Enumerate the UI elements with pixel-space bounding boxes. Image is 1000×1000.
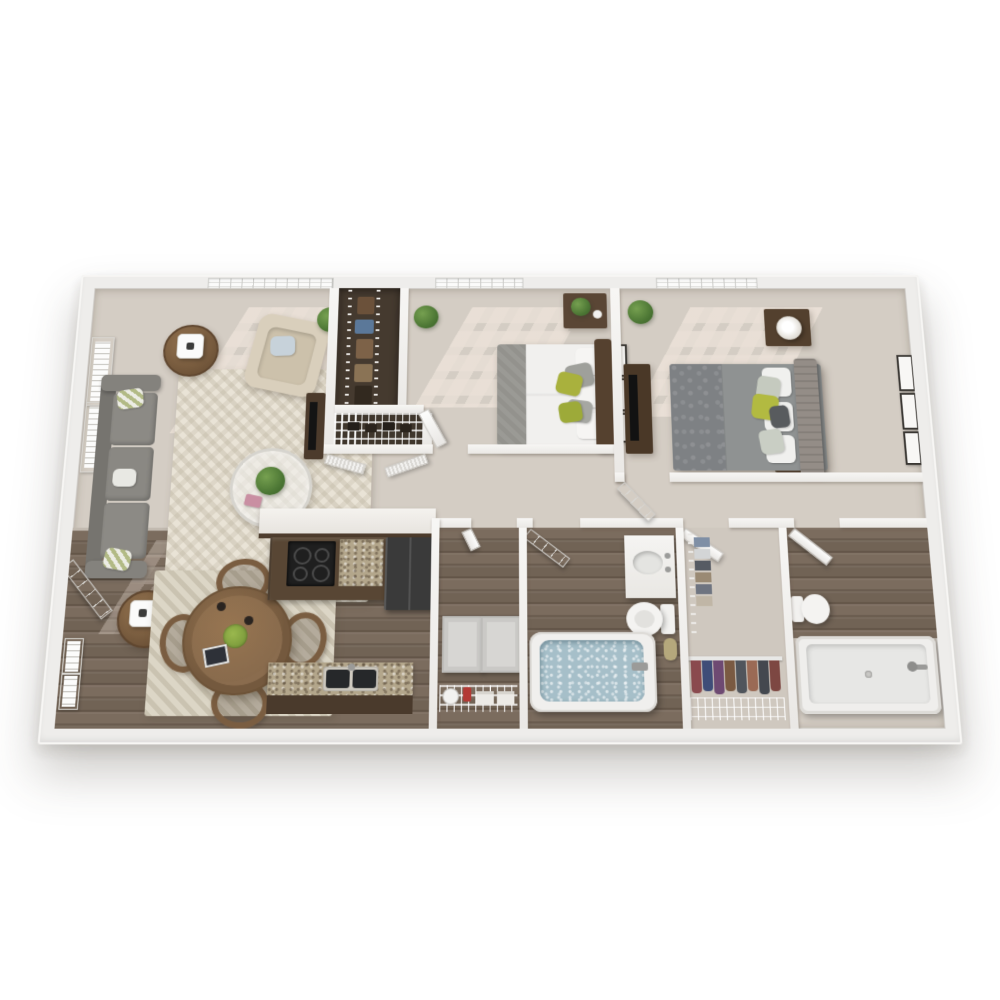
dryer (481, 616, 522, 673)
tub-water (540, 640, 645, 701)
bed2-pillow-floral-2 (758, 428, 786, 455)
towel-roll (663, 638, 677, 660)
shoes-4 (400, 424, 412, 432)
peninsula-base (266, 695, 413, 714)
vanity-sink (632, 551, 663, 574)
nightstand-plant (571, 298, 591, 316)
refrigerator (384, 537, 435, 610)
faucet-handle-1 (664, 553, 670, 559)
shower (795, 636, 942, 714)
bed1-foot-blanket (497, 344, 526, 446)
linen-closet-interior (334, 413, 424, 444)
garment (702, 660, 714, 691)
faucet-handle-2 (665, 567, 671, 573)
shoes-3 (383, 422, 395, 430)
bedroom2-plant-nw (627, 300, 653, 324)
hanging-clothes-row (691, 660, 785, 697)
bedroom1-bed (497, 344, 616, 446)
table-lamp-top (176, 334, 204, 359)
tub-faucet (632, 662, 649, 670)
breakfast-bar-counter (259, 508, 436, 533)
bed1-pillow-green-2 (558, 401, 584, 424)
wall-hall-south-5 (839, 518, 927, 528)
apartment-floorplan (37, 275, 962, 744)
bedroom2-door (617, 482, 656, 522)
walkin-lower-wire-shelf (690, 697, 786, 720)
bedroom1-plant-nw (414, 306, 439, 329)
screenshot-canvas (0, 0, 1000, 1000)
hanging-clothes-brown (357, 297, 375, 314)
wall-closet-east (397, 288, 408, 413)
wall-laundry-east (519, 528, 528, 729)
garment (769, 660, 781, 691)
burner (292, 567, 308, 582)
hanging-clothes-tan (356, 339, 374, 359)
kitchen-granite-counter (338, 539, 383, 586)
garment (758, 660, 770, 694)
wall-hall-south-2 (517, 518, 533, 528)
garment (747, 660, 759, 691)
floor-area (54, 288, 945, 729)
long-closet-interior (335, 288, 401, 413)
toilet-seat (634, 610, 655, 628)
sink-basin-left (326, 670, 350, 688)
nightstand-cup (594, 311, 602, 318)
wall-bedroom1-south (468, 444, 614, 453)
sofa-pillow-green-2 (102, 547, 133, 572)
laundry-hamper (443, 689, 458, 703)
bedroom2-art-1 (896, 355, 916, 391)
bed2-pillow-dark (768, 405, 791, 429)
sink-basin-right (352, 670, 376, 688)
garment (713, 660, 725, 694)
towel-stack-1 (476, 691, 494, 704)
shower-head (907, 661, 918, 671)
wall-bedroom2-south (669, 472, 923, 481)
bathroom2-toilet (790, 592, 833, 626)
lamp-finial (138, 609, 147, 617)
bed2-duvet-patterned (669, 364, 726, 471)
folded-clothes-stacks (694, 537, 710, 547)
hanging-basket (354, 364, 373, 382)
burner (311, 565, 330, 583)
armchair-pillow-blue (270, 336, 295, 356)
shoes-2 (365, 424, 377, 432)
linen-closet-louvered-door (384, 454, 428, 478)
sofa-pillow-white (112, 469, 137, 487)
wall-br2-south-stub (615, 472, 625, 481)
bedroom2-bed (669, 364, 828, 471)
wall-closet-divider (335, 405, 424, 413)
wall-hall-south-3 (580, 518, 683, 528)
detergent-bottle (463, 687, 471, 701)
shower-drain (865, 671, 873, 678)
kitchen-peninsula (266, 662, 413, 714)
wall-hall-south-4 (729, 518, 795, 528)
hanging-item-blue (355, 320, 374, 334)
lamp-finial (186, 343, 194, 350)
washer (442, 616, 483, 673)
kitchen-range (286, 541, 336, 586)
bathtub (529, 632, 657, 712)
toilet-bowl (801, 594, 831, 624)
garment (691, 660, 703, 693)
garment (735, 660, 747, 693)
garment (724, 660, 736, 691)
burner (314, 548, 330, 563)
closet-rail-right (373, 290, 380, 411)
bedroom2-art-2 (900, 393, 920, 430)
floorplan-scene (54, 252, 946, 744)
bedroom2-art-3 (903, 431, 923, 465)
towel-stack-2 (497, 691, 514, 704)
wall-closet-south (323, 444, 432, 453)
bathroom-vanity (624, 535, 676, 598)
burner (293, 547, 312, 565)
drum-lamp-north (775, 316, 802, 340)
entry-wall-art-2 (58, 673, 81, 710)
shoes-1 (348, 422, 360, 430)
entry-wall-art-1 (61, 638, 84, 675)
